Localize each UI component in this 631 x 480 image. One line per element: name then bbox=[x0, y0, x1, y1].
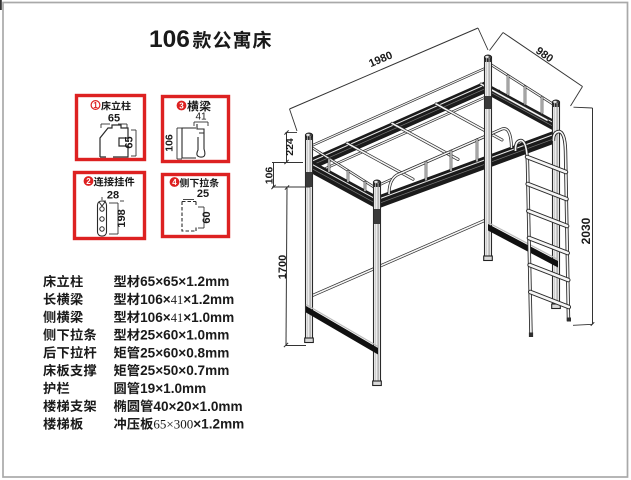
svg-text:980: 980 bbox=[533, 45, 555, 65]
svg-text:2030: 2030 bbox=[579, 217, 593, 244]
svg-text:65×300×1.2mm: 65×300×1.2mm bbox=[153, 417, 244, 432]
svg-text:224: 224 bbox=[284, 138, 296, 156]
svg-text:1: 1 bbox=[93, 101, 98, 110]
svg-text:198: 198 bbox=[116, 209, 128, 227]
svg-text:3: 3 bbox=[179, 102, 184, 111]
svg-text:25×50×0.7mm: 25×50×0.7mm bbox=[140, 363, 229, 378]
svg-text:2: 2 bbox=[86, 177, 91, 186]
svg-text:4: 4 bbox=[172, 178, 177, 187]
svg-text:106: 106 bbox=[263, 167, 275, 185]
svg-text:60: 60 bbox=[201, 211, 213, 223]
svg-text:1980: 1980 bbox=[367, 49, 394, 70]
svg-text:1700: 1700 bbox=[277, 255, 289, 279]
svg-text:19×1.0mm: 19×1.0mm bbox=[140, 381, 206, 396]
svg-text:25×60×0.8mm: 25×60×0.8mm bbox=[140, 345, 229, 360]
svg-text:28: 28 bbox=[107, 190, 119, 202]
svg-text:65: 65 bbox=[124, 136, 136, 148]
svg-text:106×41×1.0mm: 106×41×1.0mm bbox=[140, 310, 234, 325]
svg-text:65: 65 bbox=[108, 113, 120, 125]
svg-text:106×41×1.2mm: 106×41×1.2mm bbox=[140, 292, 234, 307]
svg-text:41: 41 bbox=[195, 112, 207, 123]
svg-text:40×20×1.0mm: 40×20×1.0mm bbox=[153, 399, 242, 414]
svg-text:25: 25 bbox=[197, 188, 209, 200]
svg-text:106: 106 bbox=[149, 26, 190, 53]
svg-text:106: 106 bbox=[163, 134, 175, 152]
svg-text:25×60×1.0mm: 25×60×1.0mm bbox=[140, 328, 229, 343]
svg-text:65×65×1.2mm: 65×65×1.2mm bbox=[140, 274, 229, 289]
